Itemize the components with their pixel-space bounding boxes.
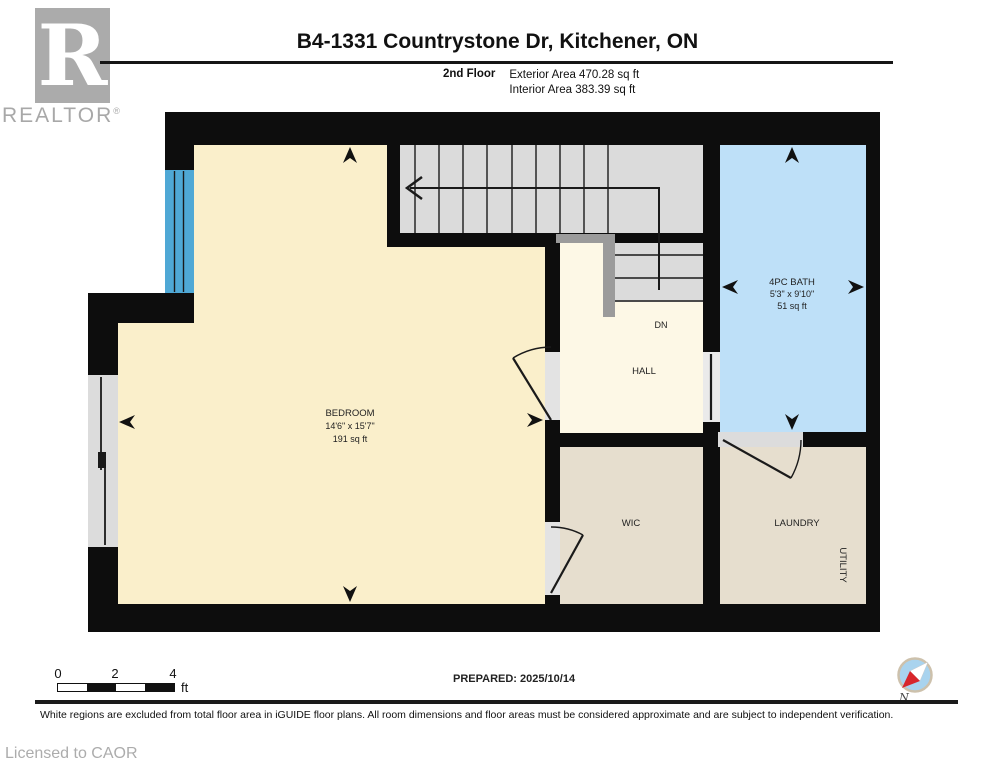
floorplan-page: BEDROOM 14'6" x 15'7" 191 sq ft 4PC BATH…	[0, 0, 995, 768]
scale-segment	[58, 684, 87, 691]
laundry-label: LAUNDRY	[774, 518, 820, 529]
exterior-area: Exterior Area 470.28 sq ft	[509, 68, 639, 83]
scale-bar: 0 2 4 ft	[57, 666, 257, 696]
scale-segment	[87, 684, 116, 691]
bedroom-hall-doorway	[545, 352, 560, 420]
stair-railing	[553, 234, 615, 243]
stairs-dn-label: DN	[655, 320, 668, 330]
floorplan-drawing: BEDROOM 14'6" x 15'7" 191 sq ft 4PC BATH…	[0, 0, 995, 768]
realtor-logo: R	[35, 8, 110, 103]
scale-tick-2: 2	[111, 666, 118, 681]
title-divider	[100, 61, 893, 64]
scale-tick-0: 0	[54, 666, 61, 681]
bedroom-label: BEDROOM	[325, 408, 374, 419]
bath-area: 51 sq ft	[777, 301, 807, 311]
scale-unit: ft	[181, 680, 188, 695]
utility-label: UTILITY	[837, 547, 848, 583]
bedroom-floor	[387, 247, 545, 604]
bedroom-wic-doorway	[545, 522, 560, 595]
prepared-date: PREPARED: 2025/10/14	[453, 673, 575, 685]
scale-tick-4: 4	[169, 666, 176, 681]
disclaimer-text: White regions are excluded from total fl…	[40, 709, 970, 721]
floor-summary: 2nd Floor Exterior Area 470.28 sq ft Int…	[443, 68, 639, 98]
compass: N	[898, 659, 931, 705]
registered-mark: ®	[113, 106, 122, 116]
wic-label: WIC	[622, 518, 641, 529]
licensed-to: Licensed to CAOR	[5, 745, 138, 763]
bedroom-area: 191 sq ft	[333, 434, 368, 444]
interior-area: Interior Area 383.39 sq ft	[509, 83, 639, 98]
floor-label: 2nd Floor	[443, 68, 495, 98]
realtor-wordmark: REALTOR®	[2, 104, 122, 128]
stair-railing	[603, 243, 615, 317]
page-title: B4-1331 Countrystone Dr, Kitchener, ON	[0, 30, 995, 54]
scale-segment	[145, 684, 174, 691]
bath-dimensions: 5'3" x 9'10"	[770, 289, 814, 299]
room-fills	[118, 145, 866, 604]
hall-label: HALL	[632, 366, 656, 377]
area-lines: Exterior Area 470.28 sq ft Interior Area…	[509, 68, 639, 98]
realtor-logo-letter: R	[38, 14, 108, 98]
bedroom-dimensions: 14'6" x 15'7"	[325, 421, 374, 431]
scale-bar-segments	[57, 683, 175, 692]
footer-divider	[35, 700, 958, 704]
bath-label: 4PC BATH	[769, 277, 815, 288]
scale-segment	[116, 684, 145, 691]
bedroom-window-upper	[165, 170, 194, 293]
realtor-wordmark-text: REALTOR	[2, 104, 113, 127]
